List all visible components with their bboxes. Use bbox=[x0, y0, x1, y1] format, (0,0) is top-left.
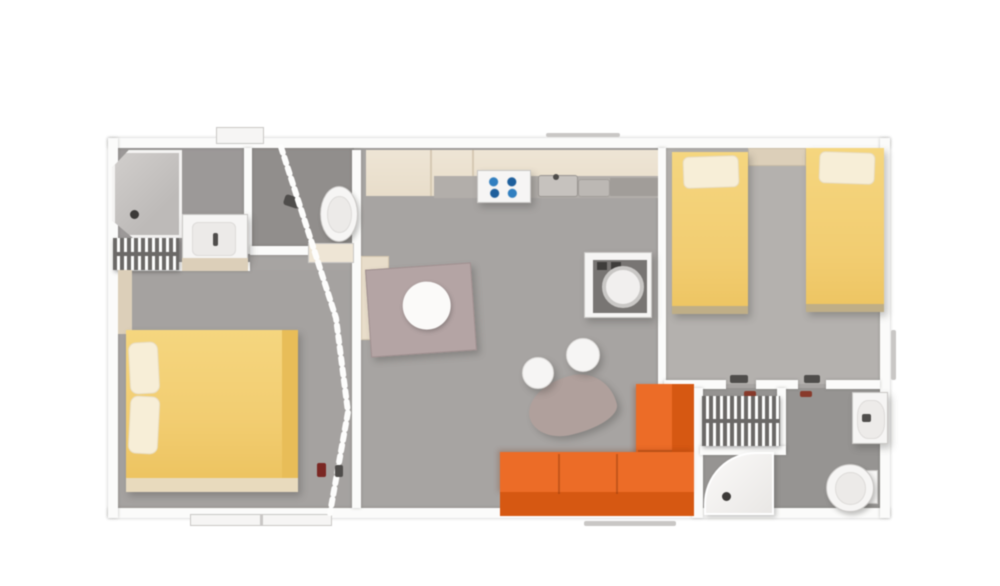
window-bottom-living bbox=[584, 521, 676, 526]
sofa-seat bbox=[500, 452, 694, 494]
single-bed-2 bbox=[806, 148, 884, 312]
window-bottom-bedroom bbox=[190, 514, 332, 526]
corner-sofa bbox=[500, 384, 694, 516]
window-top-kitchen bbox=[546, 133, 620, 137]
window-top-bathroom bbox=[216, 127, 264, 144]
kitchen-sink bbox=[538, 175, 578, 197]
cabinet-divider bbox=[430, 150, 432, 196]
dining-table bbox=[365, 262, 477, 357]
door-handle-bedroom-dark bbox=[335, 465, 343, 477]
toilet-2 bbox=[826, 464, 874, 512]
sofa-arm-back bbox=[672, 384, 694, 454]
faucet-1 bbox=[213, 233, 218, 246]
sofa-cushion-line bbox=[558, 454, 560, 494]
toilet-1 bbox=[320, 186, 358, 242]
corner-shower-1 bbox=[112, 150, 182, 238]
sliding-door-handle-2 bbox=[804, 375, 820, 383]
headboard-shelf bbox=[118, 270, 132, 334]
window-mullion bbox=[260, 515, 263, 525]
sofa-cushion-line bbox=[616, 454, 618, 494]
window-right-twin bbox=[891, 330, 896, 380]
towel-radiator-2 bbox=[702, 396, 780, 446]
washbasin-2 bbox=[852, 392, 888, 444]
single-bed-1-frame bbox=[672, 306, 748, 314]
sink-faucet bbox=[553, 174, 559, 180]
door-handle-bedroom-red bbox=[317, 463, 326, 477]
pouf-2 bbox=[566, 338, 600, 372]
washing-machine-drum bbox=[602, 266, 644, 308]
kitchen-worktop-dark bbox=[610, 178, 658, 196]
shower-drain-1 bbox=[130, 210, 139, 219]
vanity-base-1 bbox=[182, 258, 248, 271]
wall-twin-bottom-c bbox=[826, 380, 880, 389]
pillow-2 bbox=[128, 395, 161, 454]
sofa-back bbox=[500, 492, 694, 516]
pillow-1 bbox=[128, 341, 161, 394]
faucet-2 bbox=[862, 414, 871, 422]
door-handle-red-b bbox=[800, 391, 812, 397]
sliding-door-handle-1 bbox=[730, 375, 748, 383]
single-bed-1-pillow bbox=[682, 155, 739, 189]
bedside-shelf bbox=[748, 148, 806, 166]
double-bed-blanket-fold bbox=[282, 330, 298, 478]
floor-plan bbox=[0, 0, 1000, 586]
vanity-sink-1 bbox=[182, 214, 248, 260]
single-bed-2-frame bbox=[806, 304, 884, 312]
double-bed bbox=[126, 330, 298, 492]
washing-machine bbox=[584, 252, 652, 318]
dining-table-top bbox=[401, 280, 452, 331]
wall-kitchen-right bbox=[658, 148, 666, 388]
gas-hob bbox=[477, 170, 531, 203]
towel-radiator-1 bbox=[113, 238, 179, 270]
sofa-cushion-line bbox=[638, 450, 672, 452]
kitchen-sink-2 bbox=[578, 179, 610, 197]
floor-plan-canvas bbox=[0, 0, 1000, 586]
shower-drain-2 bbox=[722, 492, 731, 501]
single-bed-1 bbox=[672, 152, 748, 314]
wc-shelf bbox=[308, 243, 354, 263]
single-bed-2-pillow bbox=[818, 151, 875, 185]
washing-machine-knob bbox=[597, 262, 607, 270]
sofa-arm-seat bbox=[636, 384, 672, 454]
